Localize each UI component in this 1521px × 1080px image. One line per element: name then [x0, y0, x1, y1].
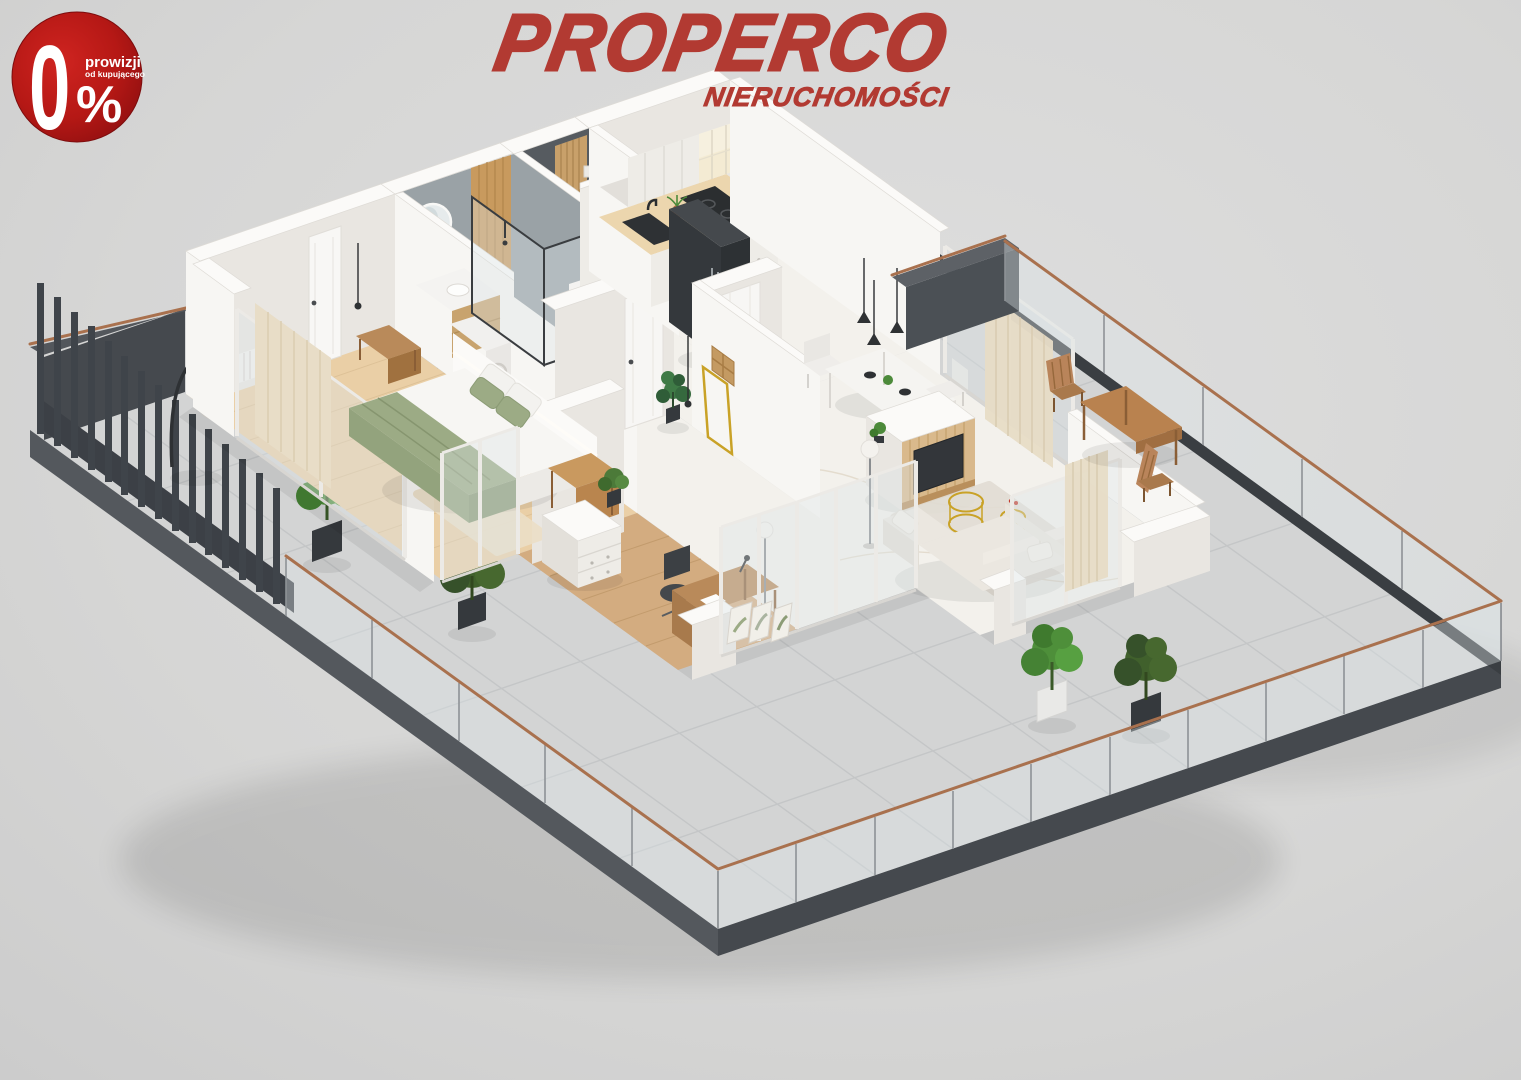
- badge-percent-icon: %: [76, 76, 122, 134]
- shower-head-icon: [503, 241, 508, 246]
- badge-zero: 0: [29, 22, 70, 155]
- door-handle-icon: [629, 360, 634, 365]
- logo-subtitle: NIERUCHOMOŚCI: [702, 81, 952, 112]
- door-handle-icon: [312, 301, 317, 306]
- leaning-art-frames: [727, 601, 792, 644]
- bedroom-south-sliding-door: [442, 427, 518, 582]
- table-plant: [883, 375, 893, 385]
- bowl-icon: [864, 372, 876, 379]
- living-curtain: [1065, 450, 1108, 592]
- real-estate-floorplan-render: 0 % prowizji od kupującego PROPERCO NIER…: [0, 0, 1521, 1080]
- bowl-icon: [899, 389, 911, 396]
- badge-line2: od kupującego: [85, 69, 145, 79]
- logo-title: PROPERCO: [489, 0, 955, 88]
- floorplan-canvas: 0 % prowizji od kupującego PROPERCO NIER…: [0, 0, 1521, 1080]
